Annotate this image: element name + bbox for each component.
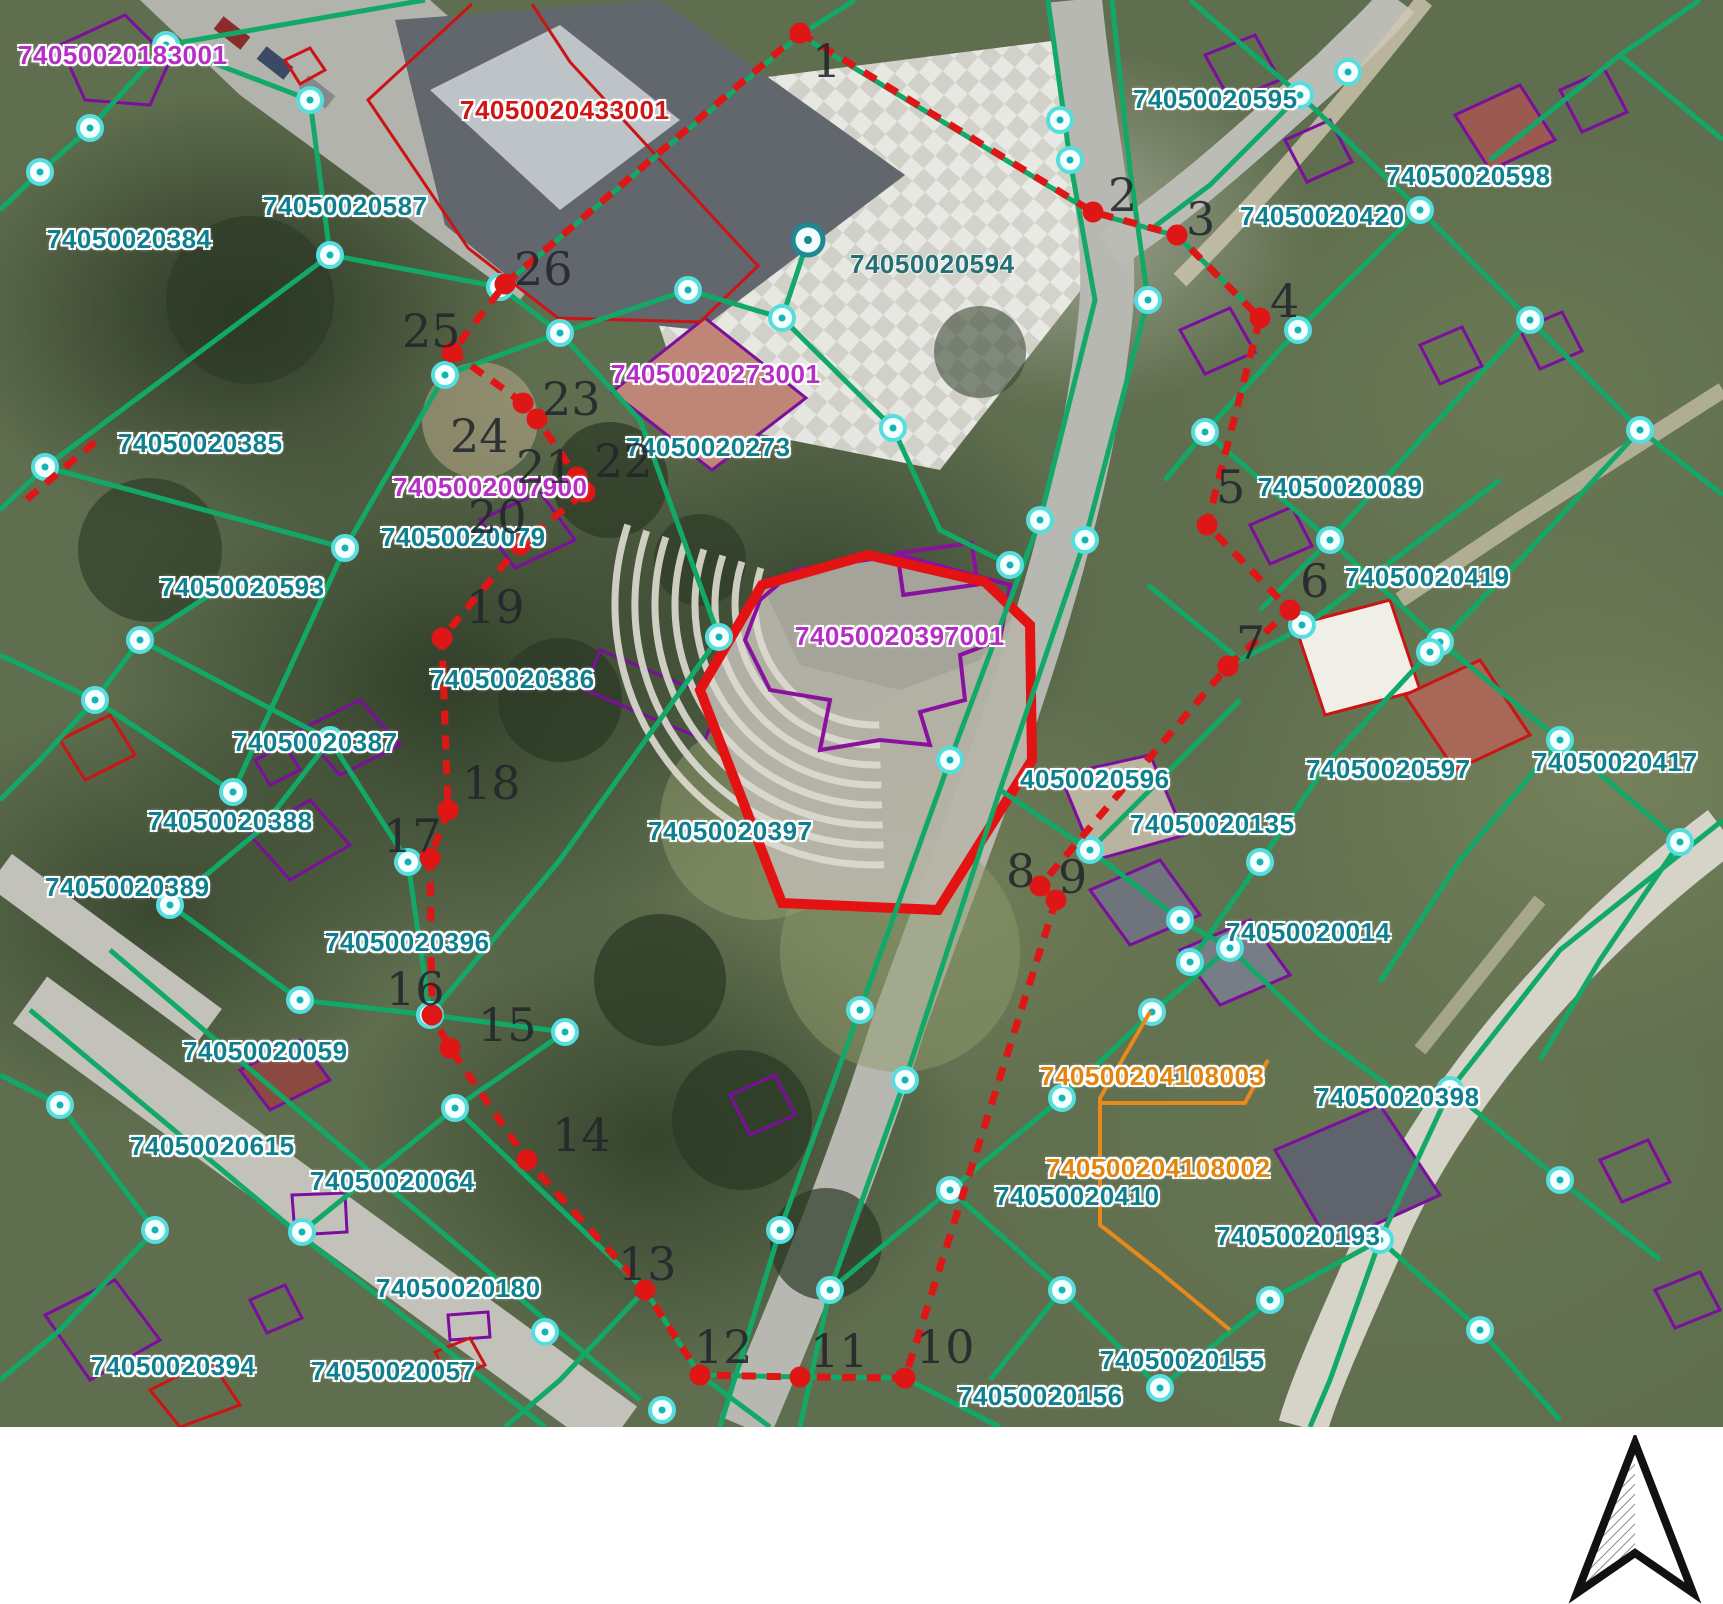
parcel-label: 74050020386 xyxy=(430,666,595,692)
parcel-label: 74050020014 xyxy=(1226,919,1391,945)
parcel-vertex-dot xyxy=(297,997,304,1004)
parcel-vertex-dot xyxy=(1187,959,1194,966)
parcel-vertex-dot xyxy=(230,789,237,796)
parcel-vertex-dot xyxy=(1257,859,1264,866)
parcel-vertex-dot xyxy=(557,330,564,337)
zone-point-number: 26 xyxy=(514,246,573,292)
parcel-label: 74050020595 xyxy=(1133,86,1298,112)
parcel-label: 74050020419 xyxy=(1345,564,1510,590)
zone-point-number: 8 xyxy=(1006,848,1035,894)
parcel-vertex-dark-dot xyxy=(804,236,812,244)
parcel-label: 74050020615 xyxy=(130,1133,295,1159)
parcel-vertex-dot xyxy=(1345,69,1352,76)
zone-point-number: 24 xyxy=(450,413,509,459)
zone-point-dot xyxy=(517,1150,538,1171)
zone-point-number: 6 xyxy=(1300,558,1329,604)
parcel-vertex-dot xyxy=(1067,157,1074,164)
parcel-vertex-dot xyxy=(342,545,349,552)
parcel-vertex-dot xyxy=(137,637,144,644)
zone-point-dot xyxy=(513,393,534,414)
parcel-vertex-dot xyxy=(1202,429,1209,436)
zone-point-number: 25 xyxy=(402,308,461,354)
zone-point-dot xyxy=(440,1038,461,1059)
zone-point-number: 21 xyxy=(516,444,575,490)
parcel-vertex-dot xyxy=(779,315,786,322)
parcel-vertex-dot xyxy=(1299,622,1306,629)
parcel-vertex-dot xyxy=(947,757,954,764)
parcel-vertex-dot xyxy=(42,464,49,471)
parcel-label: 74050020587 xyxy=(263,193,428,219)
basemap-graphics xyxy=(0,0,1723,1427)
parcel-vertex-dot xyxy=(1087,847,1094,854)
zone-point-dot xyxy=(432,628,453,649)
zone-point-dot xyxy=(1083,202,1104,223)
north-arrow-icon xyxy=(1545,1435,1723,1604)
parcel-label: 74050020593 xyxy=(160,574,325,600)
zone-point-number: 3 xyxy=(1186,196,1215,242)
zone-point-dot xyxy=(1250,308,1271,329)
parcel-vertex-dot xyxy=(827,1287,834,1294)
zone-point-dot xyxy=(1197,515,1218,536)
parcel-label: 74050020155 xyxy=(1100,1347,1265,1373)
parcel-vertex-dot xyxy=(1637,427,1644,434)
parcel-vertex-dot xyxy=(1037,517,1044,524)
parcel-label: 74050020089 xyxy=(1258,474,1423,500)
parcel-vertex-dot xyxy=(1427,649,1434,656)
parcel-label: 74050020135 xyxy=(1130,811,1295,837)
parcel-vertex-dot xyxy=(777,1227,784,1234)
map-document: 7405002018300174050020433001740500205877… xyxy=(0,0,1723,1604)
parcel-vertex-dot xyxy=(152,1227,159,1234)
parcel-label: 74050020384 xyxy=(47,226,212,252)
parcel-vertex-dot xyxy=(327,252,334,259)
parcel-label: 74050020396 xyxy=(325,929,490,955)
parcel-label: 74050020183001 xyxy=(18,42,227,68)
zone-point-dot xyxy=(790,1367,811,1388)
parcel-label: 4050020596 xyxy=(1020,766,1170,792)
parcel-vertex-dot xyxy=(452,1105,459,1112)
parcel-label: 74050020388 xyxy=(148,808,313,834)
parcel-label: 74050020410 xyxy=(995,1183,1160,1209)
parcel-vertex-dot xyxy=(1327,537,1334,544)
zone-point-number: 16 xyxy=(386,966,445,1012)
parcel-label: 74050020397 xyxy=(648,818,813,844)
zone-point-number: 22 xyxy=(594,438,653,484)
zone-point-number: 1 xyxy=(812,38,841,84)
parcel-label: 740500204108003 xyxy=(1040,1063,1264,1089)
parcel-vertex-dot xyxy=(1007,562,1014,569)
parcel-vertex-dot xyxy=(562,1029,569,1036)
parcel-label: 74050020180 xyxy=(376,1275,541,1301)
zone-point-number: 9 xyxy=(1058,854,1087,900)
parcel-vertex-dot xyxy=(92,697,99,704)
parcel-vertex-dot xyxy=(299,1229,306,1236)
parcel-vertex-dot xyxy=(1059,1095,1066,1102)
parcel-label: 74050020064 xyxy=(310,1168,475,1194)
parcel-vertex-dot xyxy=(37,169,44,176)
zone-point-number: 4 xyxy=(1270,278,1299,324)
parcel-vertex-dot xyxy=(857,1007,864,1014)
parcel-label: 74050020057 xyxy=(311,1358,476,1384)
parcel-label: 74050020273001 xyxy=(611,361,820,387)
zone-point-number: 10 xyxy=(916,1324,975,1370)
parcel-label: 74050020059 xyxy=(183,1038,348,1064)
parcel-vertex-dot xyxy=(1157,1385,1164,1392)
zone-point-number: 14 xyxy=(552,1112,611,1158)
zone-point-dot xyxy=(790,23,811,44)
zone-point-number: 18 xyxy=(462,760,521,806)
parcel-label: 74050020398 xyxy=(1315,1084,1480,1110)
parcel-label: 74050020397001 xyxy=(795,623,1004,649)
parcel-vertex-dot xyxy=(659,1407,666,1414)
parcel-vertex-dot xyxy=(685,287,692,294)
zone-point-number: 2 xyxy=(1108,172,1137,218)
parcel-label: 740500204108002 xyxy=(1046,1155,1270,1181)
parcel-label: 74050020597 xyxy=(1306,756,1471,782)
parcel-vertex-dot xyxy=(947,1187,954,1194)
zone-point-number: 5 xyxy=(1216,464,1245,510)
parcel-vertex-dot xyxy=(716,634,723,641)
zone-point-number: 13 xyxy=(618,1241,677,1287)
parcel-vertex-dot xyxy=(1677,839,1684,846)
zone-point-number: 15 xyxy=(478,1002,537,1048)
parcel-vertex-dot xyxy=(542,1329,549,1336)
parcel-label: 74050020394 xyxy=(91,1353,256,1379)
parcel-vertex-dot xyxy=(1557,737,1564,744)
parcel-vertex-dot xyxy=(1267,1297,1274,1304)
zone-point-number: 11 xyxy=(810,1328,869,1374)
parcel-vertex-dot xyxy=(87,125,94,132)
zone-point-number: 19 xyxy=(466,584,525,630)
zone-point-number: 7 xyxy=(1236,620,1265,666)
parcel-label: 74050020387 xyxy=(233,729,398,755)
zone-point-number: 20 xyxy=(468,494,527,540)
parcel-vertex-dot xyxy=(1145,297,1152,304)
parcel-label: 74050020594 xyxy=(850,251,1015,277)
parcel-vertex-dot xyxy=(1557,1177,1564,1184)
aerial-map: 7405002018300174050020433001740500205877… xyxy=(0,0,1723,1427)
zone-point-number: 23 xyxy=(542,376,601,422)
parcel-vertex-dot xyxy=(902,1077,909,1084)
parcel-label: 74050020156 xyxy=(958,1383,1123,1409)
parcel-label: 74050020433001 xyxy=(460,97,669,123)
parcel-vertex-dot xyxy=(890,425,897,432)
parcel-vertex-dot xyxy=(1527,317,1534,324)
parcel-label: 74050020598 xyxy=(1386,163,1551,189)
parcel-label: 74050020385 xyxy=(118,430,283,456)
parcel-vertex-dot xyxy=(1057,117,1064,124)
parcel-vertex-dot xyxy=(1177,917,1184,924)
parcel-vertex-dot xyxy=(1082,537,1089,544)
parcel-vertex-dot xyxy=(442,372,449,379)
parcel-vertex-dot xyxy=(1059,1287,1066,1294)
parcel-vertex-dot xyxy=(1477,1327,1484,1334)
legend-strip: Kultūras pieminekļa teritorija Individuā… xyxy=(0,1427,1723,1604)
parcel-vertex-dot xyxy=(1417,207,1424,214)
parcel-label: 74050020389 xyxy=(45,874,210,900)
parcel-label: 74050020417 xyxy=(1533,749,1698,775)
zone-point-dot xyxy=(1167,225,1188,246)
parcel-vertex-dot xyxy=(57,1102,64,1109)
zone-point-number: 17 xyxy=(383,813,442,859)
zone-point-dot xyxy=(895,1368,916,1389)
parcel-label: 74050020193 xyxy=(1216,1223,1381,1249)
zone-point-dot xyxy=(1280,600,1301,621)
parcel-vertex-dot xyxy=(167,902,174,909)
zone-point-dot xyxy=(495,274,516,295)
parcel-label: 74050020420 xyxy=(1240,203,1405,229)
zone-point-number: 12 xyxy=(694,1324,753,1370)
parcel-vertex-dot xyxy=(307,97,314,104)
